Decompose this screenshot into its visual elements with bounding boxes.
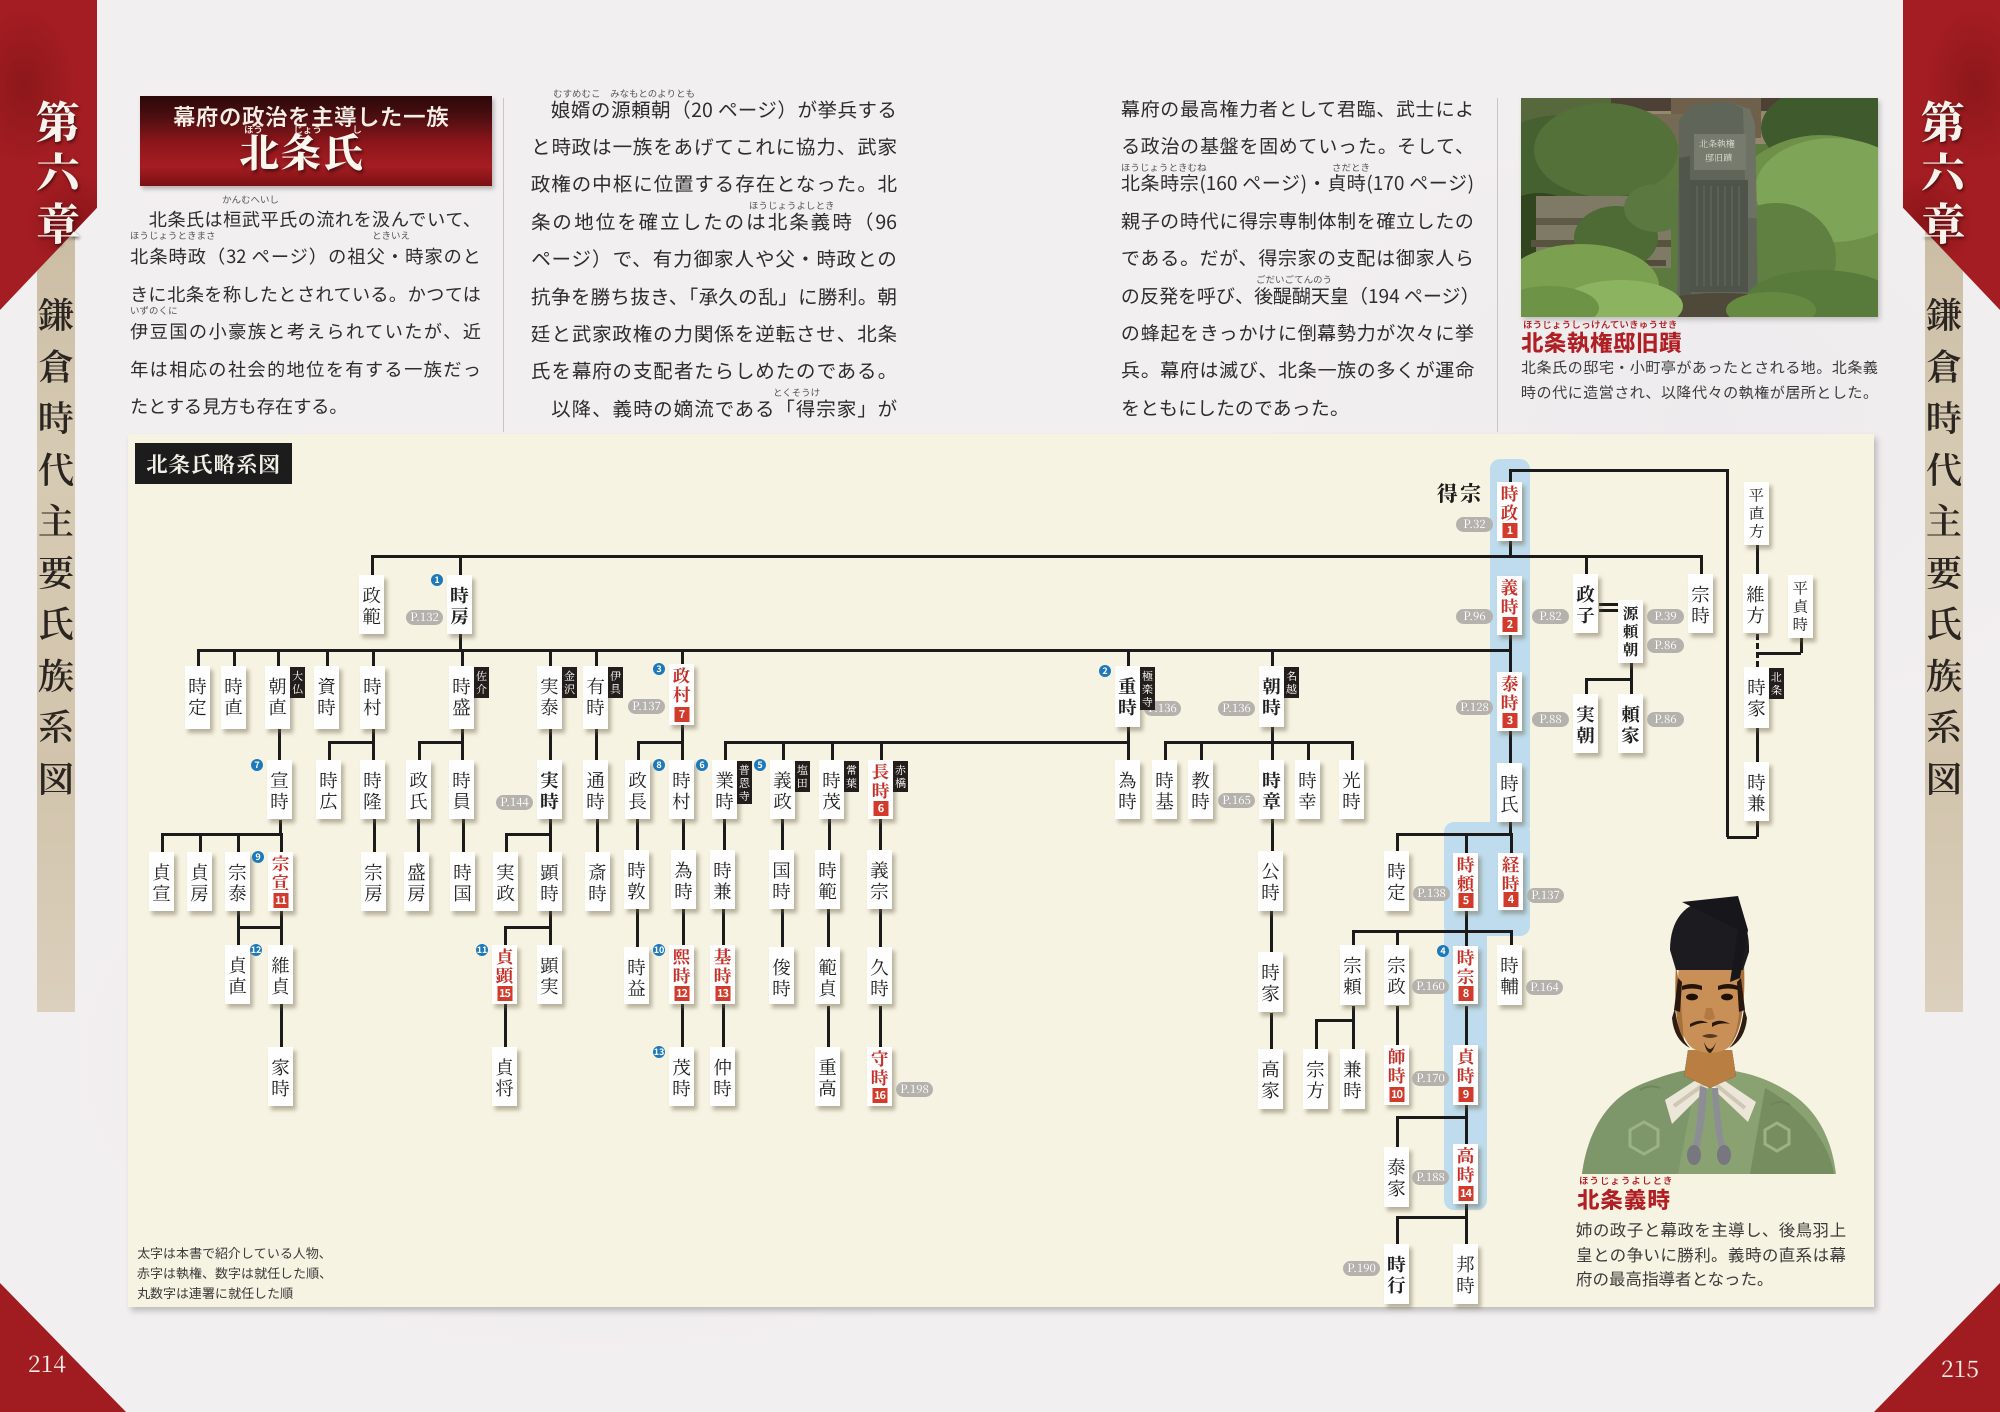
svg-text:北条執権: 北条執権 [1699, 137, 1735, 150]
svg-text:邸旧蹟: 邸旧蹟 [1705, 151, 1733, 164]
